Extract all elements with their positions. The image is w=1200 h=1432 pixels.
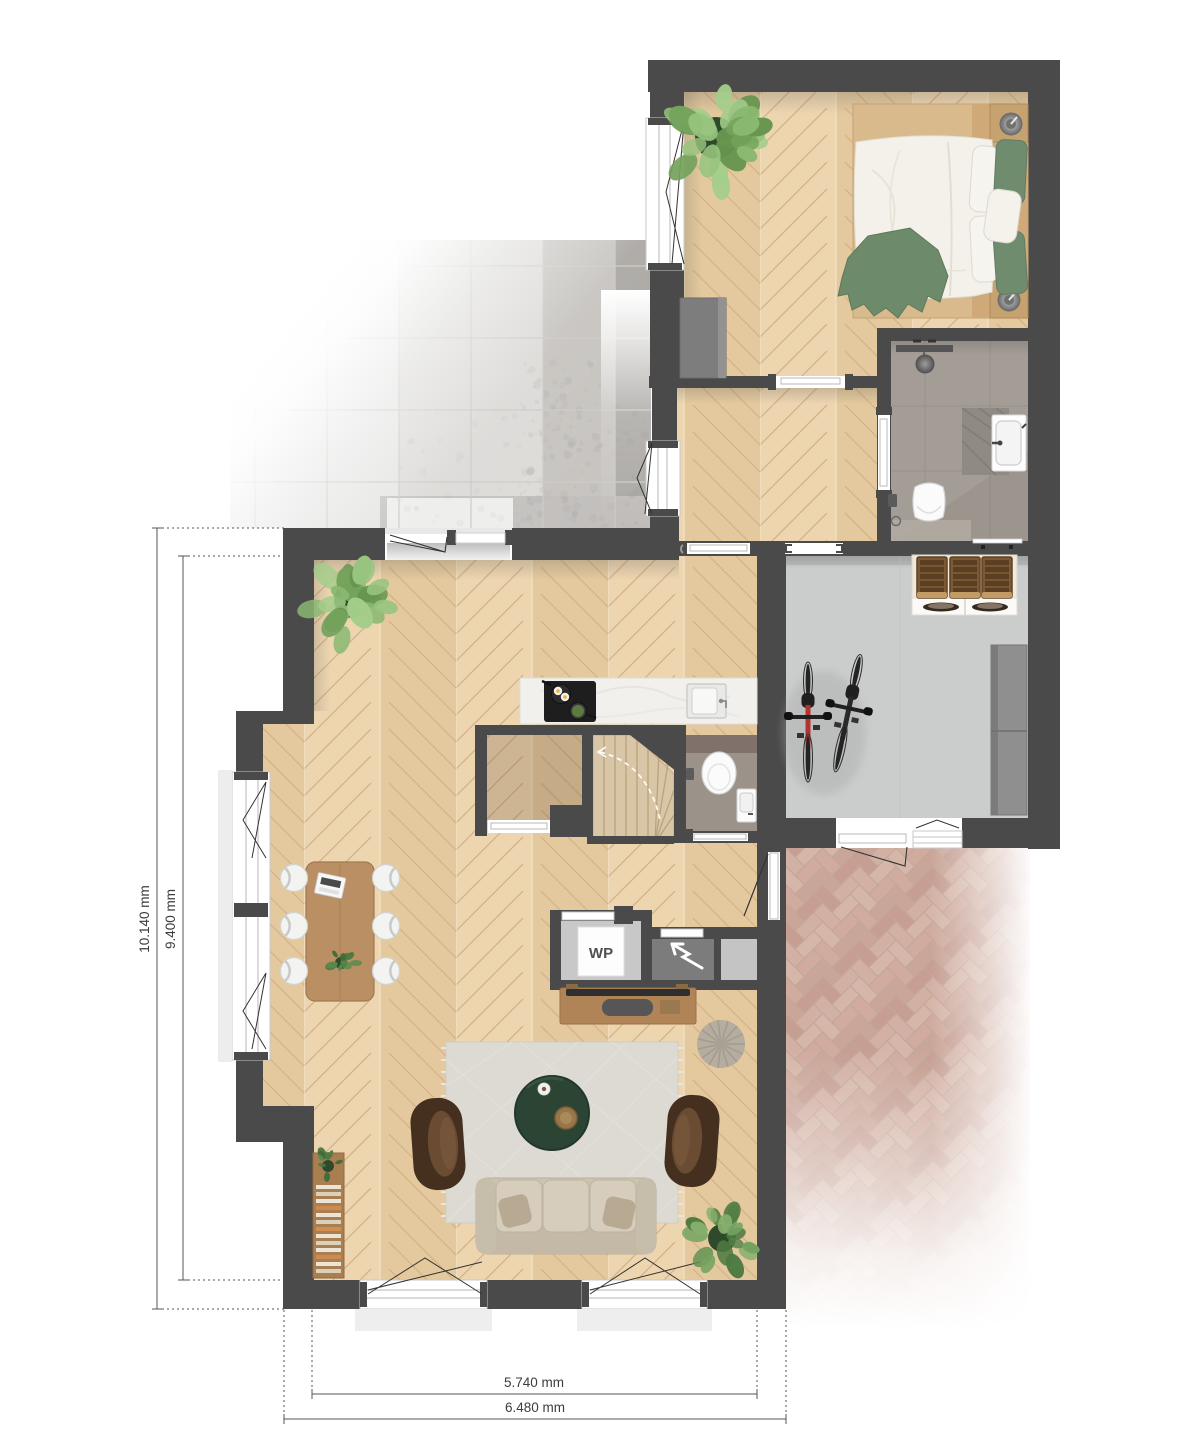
svg-text:5.740 mm: 5.740 mm bbox=[504, 1375, 564, 1390]
svg-text:WP: WP bbox=[589, 945, 613, 962]
svg-text:6.480 mm: 6.480 mm bbox=[505, 1400, 565, 1415]
svg-text:10.140 mm: 10.140 mm bbox=[137, 885, 152, 953]
svg-text:9.400 mm: 9.400 mm bbox=[163, 889, 178, 949]
